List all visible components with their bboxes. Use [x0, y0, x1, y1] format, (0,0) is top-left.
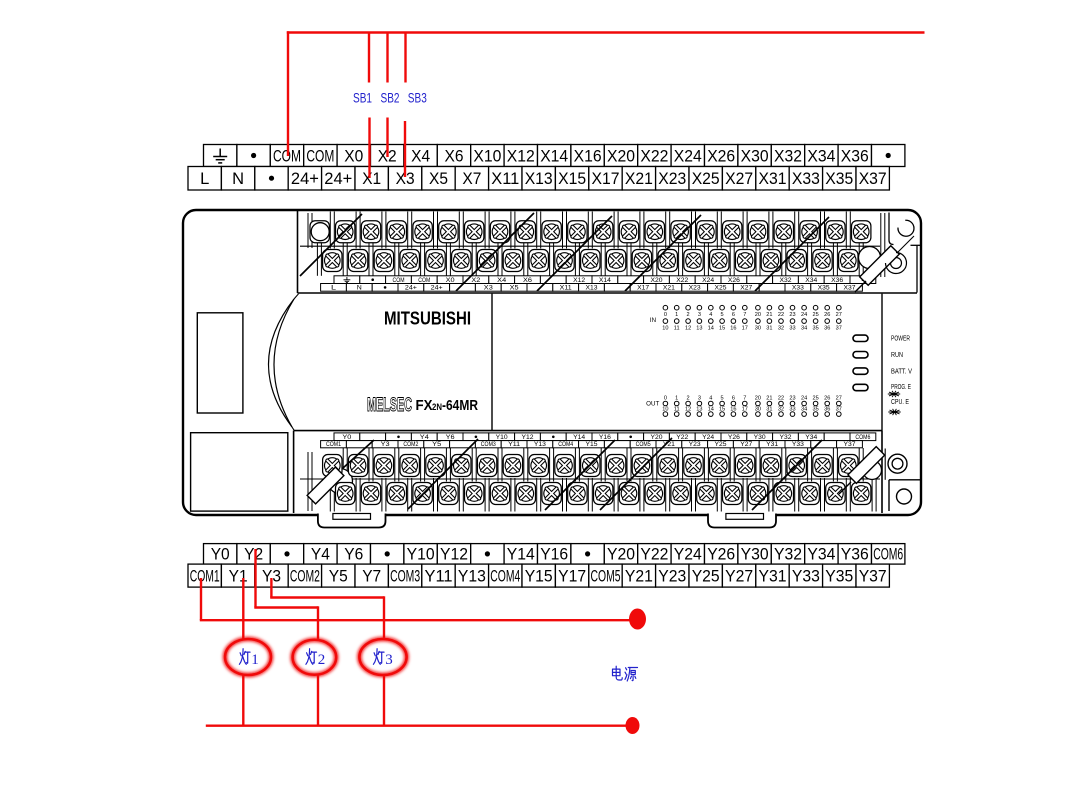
- svg-text:X17: X17: [592, 170, 620, 188]
- svg-text:COM5: COM5: [591, 567, 621, 585]
- svg-text:COM2: COM2: [290, 567, 320, 585]
- svg-text:Y27: Y27: [725, 567, 753, 585]
- svg-text:23: 23: [789, 312, 795, 318]
- svg-text:X10: X10: [473, 147, 501, 165]
- svg-text:FX: FX: [416, 398, 433, 414]
- svg-text:Y30: Y30: [741, 546, 769, 564]
- svg-text:X24: X24: [702, 277, 715, 284]
- svg-text:20: 20: [755, 312, 761, 318]
- svg-text:2: 2: [687, 312, 690, 318]
- svg-text:26: 26: [824, 312, 830, 318]
- svg-text:33: 33: [789, 325, 795, 331]
- svg-text:Y35: Y35: [825, 567, 853, 585]
- svg-text:20: 20: [755, 395, 761, 401]
- svg-text:X23: X23: [689, 285, 702, 292]
- svg-text:Y26: Y26: [728, 434, 741, 441]
- svg-text:22: 22: [778, 395, 784, 401]
- svg-text:Y6: Y6: [344, 546, 363, 564]
- svg-text:OUT: OUT: [646, 401, 659, 408]
- svg-text:11: 11: [674, 325, 680, 331]
- svg-text:X2: X2: [471, 277, 481, 284]
- svg-text:Y0: Y0: [211, 546, 230, 564]
- svg-text:Y21: Y21: [625, 567, 653, 585]
- svg-text:X17: X17: [637, 285, 650, 292]
- svg-text:X24: X24: [674, 147, 702, 165]
- svg-text:Y34: Y34: [805, 434, 818, 441]
- svg-text:Y36: Y36: [841, 546, 869, 564]
- svg-text:4: 4: [709, 312, 712, 318]
- svg-text:Y4: Y4: [311, 546, 330, 564]
- svg-text:Y6: Y6: [446, 434, 456, 441]
- svg-text:24+: 24+: [431, 285, 444, 292]
- svg-text:24: 24: [801, 395, 807, 401]
- svg-text:X27: X27: [740, 285, 753, 292]
- svg-text:X5: X5: [510, 285, 520, 292]
- svg-text:POWER: POWER: [891, 334, 910, 343]
- svg-text:24: 24: [801, 312, 807, 318]
- svg-text:Y30: Y30: [754, 434, 767, 441]
- svg-text:X25: X25: [715, 285, 728, 292]
- svg-text:COM5: COM5: [636, 441, 652, 448]
- svg-text:24+: 24+: [324, 170, 352, 188]
- svg-text:Y26: Y26: [707, 546, 735, 564]
- svg-text:X1: X1: [362, 170, 381, 188]
- svg-text:L: L: [200, 170, 209, 188]
- svg-text:25: 25: [812, 312, 818, 318]
- svg-text:1: 1: [675, 395, 678, 401]
- svg-text:X31: X31: [759, 170, 787, 188]
- svg-text:13: 13: [696, 325, 702, 331]
- svg-text:1: 1: [251, 652, 259, 668]
- svg-text:COM1: COM1: [190, 567, 220, 585]
- svg-text:X3: X3: [484, 285, 494, 292]
- svg-text:Y16: Y16: [599, 434, 612, 441]
- svg-text:IN: IN: [650, 317, 656, 324]
- svg-text:5: 5: [721, 312, 724, 318]
- svg-text:X35: X35: [818, 285, 831, 292]
- svg-text:23: 23: [789, 395, 795, 401]
- svg-text:MELSEC: MELSEC: [367, 395, 412, 416]
- svg-text:X36: X36: [831, 277, 844, 284]
- svg-text:Y27: Y27: [740, 441, 753, 448]
- svg-text:Y33: Y33: [792, 567, 820, 585]
- svg-text:Y11: Y11: [508, 441, 521, 448]
- svg-text:Y12: Y12: [440, 546, 468, 564]
- svg-text:COM: COM: [306, 147, 334, 165]
- svg-text:30: 30: [755, 325, 761, 331]
- svg-text:Y23: Y23: [658, 567, 686, 585]
- svg-text:22: 22: [778, 312, 784, 318]
- svg-text:Y24: Y24: [674, 546, 702, 564]
- svg-text:X25: X25: [692, 170, 720, 188]
- svg-text:X16: X16: [574, 147, 602, 165]
- svg-text:Y25: Y25: [715, 441, 728, 448]
- svg-text:27: 27: [836, 312, 842, 318]
- svg-text:36: 36: [824, 325, 830, 331]
- svg-text:6: 6: [732, 395, 735, 401]
- svg-text:Y13: Y13: [534, 441, 547, 448]
- svg-text:Y15: Y15: [525, 567, 553, 585]
- svg-text:X32: X32: [780, 277, 793, 284]
- svg-text:37: 37: [836, 325, 842, 331]
- svg-text:0: 0: [664, 395, 667, 401]
- svg-text:X23: X23: [658, 170, 686, 188]
- svg-text:COM2: COM2: [403, 441, 419, 448]
- svg-text:COM: COM: [418, 277, 430, 284]
- svg-text:34: 34: [801, 325, 807, 331]
- svg-text:N: N: [232, 170, 244, 188]
- svg-text:CPU. E: CPU. E: [891, 397, 909, 406]
- svg-text:2: 2: [687, 395, 690, 401]
- svg-text:6: 6: [732, 312, 735, 318]
- svg-text:X14: X14: [599, 277, 612, 284]
- svg-text:RUN: RUN: [891, 350, 903, 359]
- svg-text:2: 2: [318, 652, 326, 668]
- svg-text:SB2: SB2: [381, 91, 400, 106]
- svg-text:Y14: Y14: [573, 434, 586, 441]
- svg-text:X11: X11: [560, 285, 573, 292]
- svg-text:27: 27: [836, 395, 842, 401]
- svg-text:25: 25: [812, 395, 818, 401]
- svg-text:17: 17: [742, 325, 748, 331]
- svg-text:X21: X21: [625, 170, 653, 188]
- svg-text:X21: X21: [663, 285, 676, 292]
- svg-text:N: N: [357, 285, 362, 292]
- svg-text:X4: X4: [497, 277, 507, 284]
- svg-text:X20: X20: [651, 277, 664, 284]
- svg-text:X13: X13: [586, 285, 599, 292]
- svg-text:PROG. E: PROG. E: [891, 382, 911, 391]
- svg-text:Y2: Y2: [244, 546, 263, 564]
- svg-text:X34: X34: [807, 147, 835, 165]
- svg-text:Y37: Y37: [859, 567, 887, 585]
- svg-text:COM3: COM3: [390, 567, 420, 585]
- svg-text:21: 21: [766, 395, 772, 401]
- svg-text:Y14: Y14: [507, 546, 535, 564]
- svg-text:5: 5: [721, 395, 724, 401]
- svg-text:Y32: Y32: [774, 546, 802, 564]
- svg-text:Y22: Y22: [640, 546, 668, 564]
- svg-text:-64MR: -64MR: [442, 398, 478, 414]
- svg-text:Y25: Y25: [692, 567, 720, 585]
- svg-text:X37: X37: [844, 285, 857, 292]
- svg-text:COM: COM: [393, 277, 405, 284]
- svg-text:COM4: COM4: [490, 567, 520, 585]
- svg-text:3: 3: [385, 652, 393, 668]
- svg-text:X0: X0: [344, 147, 363, 165]
- svg-text:X33: X33: [792, 170, 820, 188]
- svg-text:16: 16: [730, 325, 736, 331]
- svg-text:X22: X22: [640, 147, 668, 165]
- svg-text:MITSUBISHI: MITSUBISHI: [384, 308, 471, 329]
- svg-text:Y32: Y32: [780, 434, 793, 441]
- svg-text:Y15: Y15: [586, 441, 599, 448]
- svg-text:SB3: SB3: [408, 91, 427, 106]
- svg-text:4: 4: [709, 395, 712, 401]
- svg-text:X37: X37: [859, 170, 887, 188]
- svg-text:31: 31: [766, 325, 772, 331]
- svg-text:Y16: Y16: [540, 546, 568, 564]
- svg-text:Y0: Y0: [342, 434, 352, 441]
- svg-text:X27: X27: [725, 170, 753, 188]
- svg-text:Y5: Y5: [432, 441, 442, 448]
- svg-text:Y31: Y31: [766, 441, 779, 448]
- svg-text:X22: X22: [676, 277, 689, 284]
- svg-text:Y20: Y20: [651, 434, 664, 441]
- svg-text:X12: X12: [507, 147, 535, 165]
- svg-text:7: 7: [743, 312, 746, 318]
- svg-text:0: 0: [664, 312, 667, 318]
- svg-text:X34: X34: [805, 277, 818, 284]
- svg-text:SB1: SB1: [353, 91, 372, 106]
- svg-text:X15: X15: [558, 170, 586, 188]
- svg-text:Y31: Y31: [759, 567, 787, 585]
- svg-text:Y34: Y34: [807, 546, 835, 564]
- svg-text:Y12: Y12: [522, 434, 535, 441]
- svg-text:X6: X6: [523, 277, 533, 284]
- svg-text:Y11: Y11: [425, 567, 453, 585]
- svg-text:X11: X11: [491, 170, 519, 188]
- svg-text:3: 3: [698, 395, 701, 401]
- svg-text:Y37: Y37: [844, 441, 857, 448]
- svg-text:12: 12: [685, 325, 691, 331]
- svg-text:COM6: COM6: [855, 434, 871, 441]
- svg-text:Y33: Y33: [792, 441, 805, 448]
- svg-text:X20: X20: [607, 147, 635, 165]
- svg-text:COM1: COM1: [326, 441, 342, 448]
- svg-text:Y4: Y4: [420, 434, 430, 441]
- svg-text:Y10: Y10: [407, 546, 435, 564]
- svg-text:Y5: Y5: [329, 567, 348, 585]
- svg-text:COM4: COM4: [558, 441, 574, 448]
- svg-text:X0: X0: [446, 277, 456, 284]
- svg-text:BATT. V: BATT. V: [891, 366, 913, 375]
- svg-text:Y3: Y3: [381, 441, 391, 448]
- svg-text:Y24: Y24: [702, 434, 715, 441]
- svg-text:Y22: Y22: [676, 434, 689, 441]
- svg-text:35: 35: [812, 325, 818, 331]
- svg-text:X14: X14: [540, 147, 568, 165]
- svg-text:X32: X32: [774, 147, 802, 165]
- svg-text:24+: 24+: [291, 170, 319, 188]
- svg-text:X5: X5: [429, 170, 448, 188]
- svg-text:Y17: Y17: [558, 567, 586, 585]
- svg-text:1: 1: [675, 312, 678, 318]
- svg-text:32: 32: [778, 325, 784, 331]
- svg-text:24+: 24+: [405, 285, 418, 292]
- svg-text:X13: X13: [525, 170, 553, 188]
- svg-text:X30: X30: [741, 147, 769, 165]
- svg-text:Y20: Y20: [607, 546, 635, 564]
- svg-text:X26: X26: [728, 277, 741, 284]
- svg-text:Y1: Y1: [229, 567, 248, 585]
- svg-text:COM3: COM3: [481, 441, 497, 448]
- svg-text:X33: X33: [792, 285, 805, 292]
- svg-text:COM6: COM6: [873, 546, 903, 564]
- svg-text:X35: X35: [825, 170, 853, 188]
- svg-text:Y23: Y23: [689, 441, 702, 448]
- svg-text:X26: X26: [707, 147, 735, 165]
- svg-text:21: 21: [766, 312, 772, 318]
- svg-text:10: 10: [662, 325, 668, 331]
- svg-text:X12: X12: [573, 277, 586, 284]
- svg-text:X7: X7: [462, 170, 481, 188]
- svg-text:26: 26: [824, 395, 830, 401]
- svg-text:14: 14: [708, 325, 714, 331]
- svg-text:X4: X4: [411, 147, 430, 165]
- svg-text:Y13: Y13: [458, 567, 486, 585]
- svg-text:2N: 2N: [432, 402, 442, 413]
- svg-text:7: 7: [743, 395, 746, 401]
- svg-text:15: 15: [719, 325, 725, 331]
- svg-text:X36: X36: [841, 147, 869, 165]
- svg-text:Y7: Y7: [362, 567, 381, 585]
- svg-text:3: 3: [698, 312, 701, 318]
- svg-text:Y10: Y10: [496, 434, 509, 441]
- svg-text:X6: X6: [445, 147, 464, 165]
